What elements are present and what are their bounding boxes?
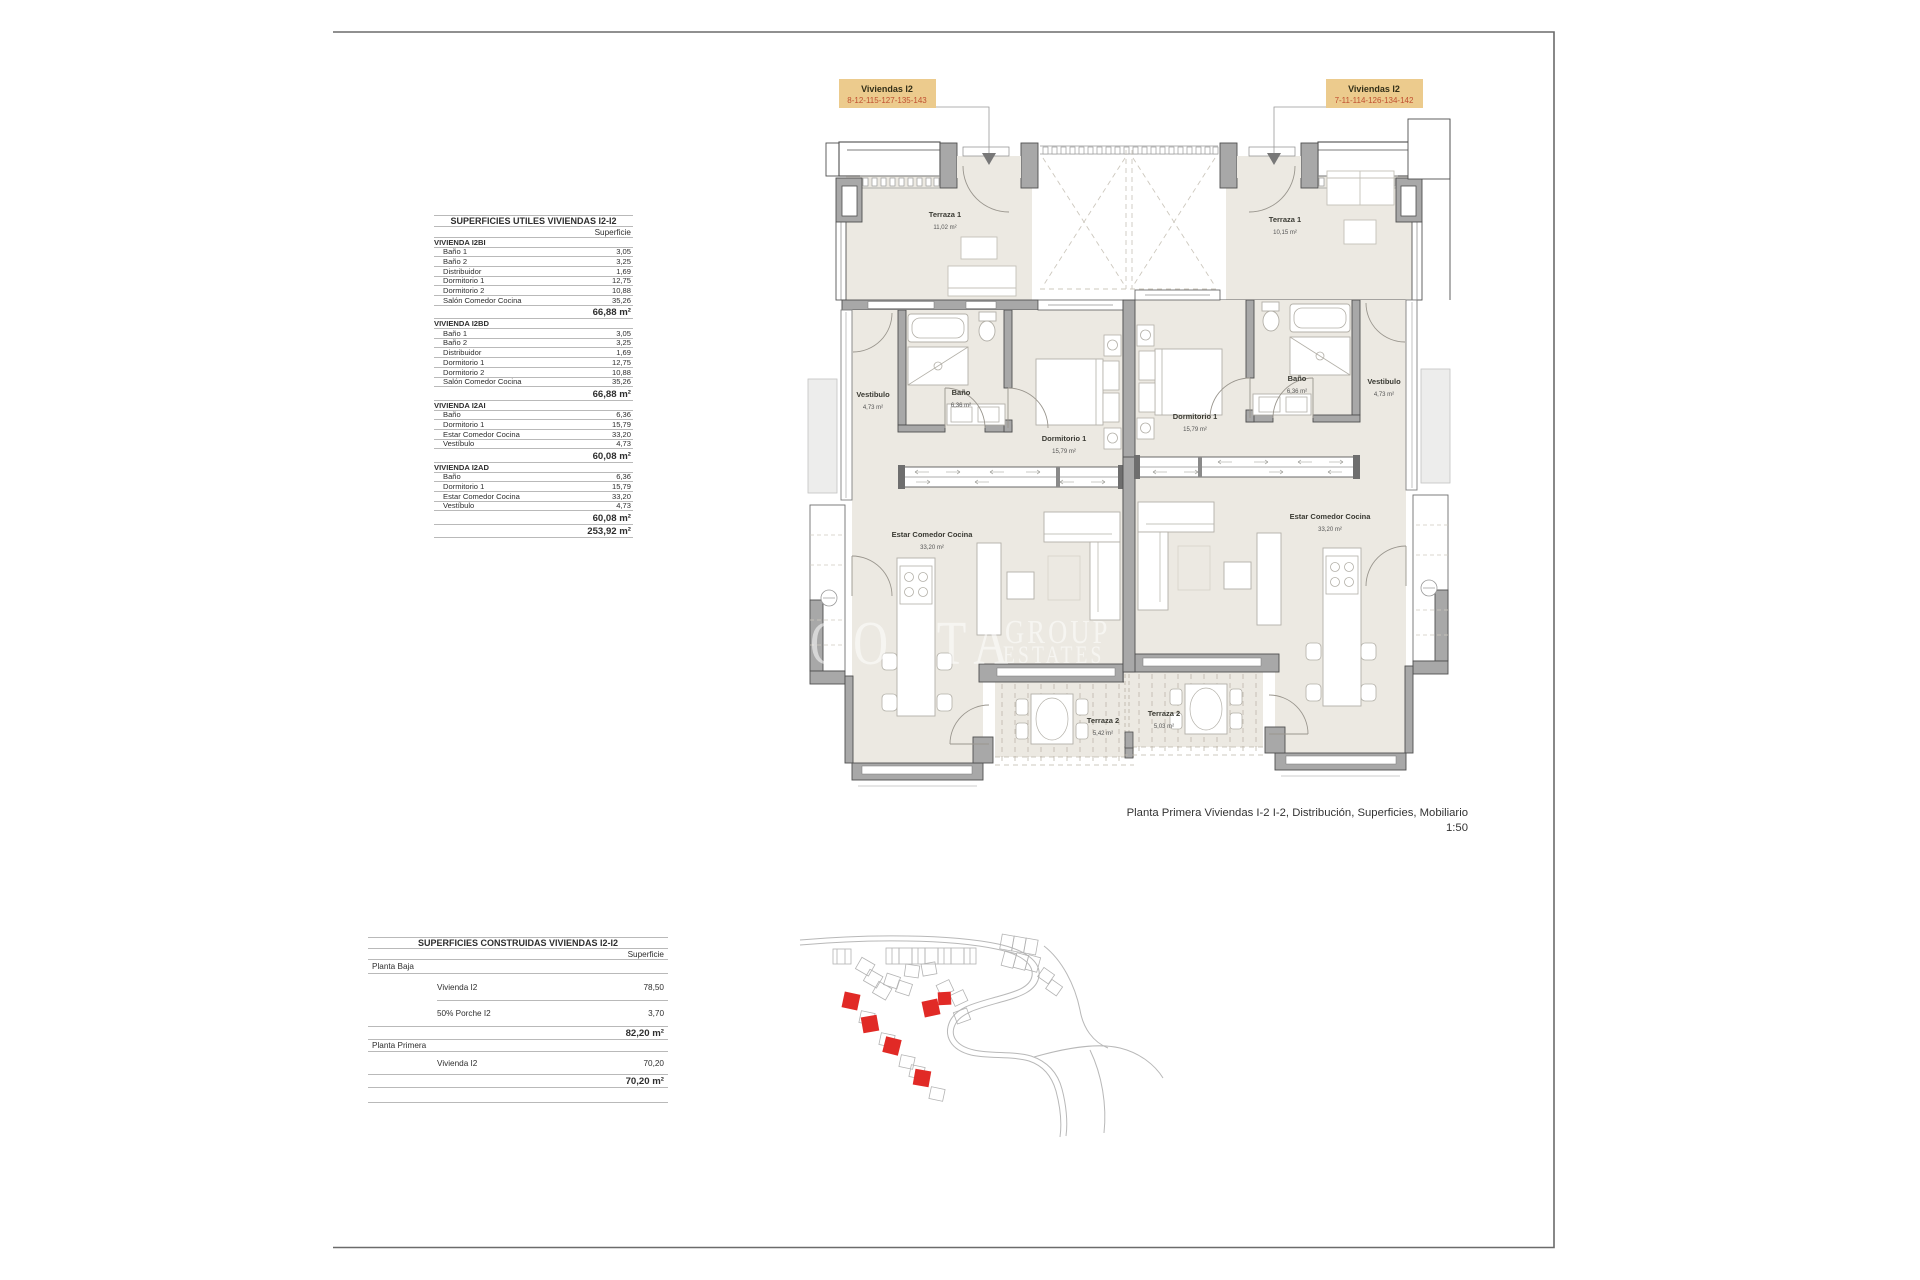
svg-text:Estar Comedor Cocina: Estar Comedor Cocina [1290, 512, 1372, 521]
svg-text:33,20 m²: 33,20 m² [1318, 527, 1342, 533]
svg-text:Terraza 1: Terraza 1 [929, 210, 961, 219]
svg-text:COSTA: COSTA [810, 609, 1019, 678]
svg-text:Vestibulo: Vestibulo [856, 390, 890, 399]
svg-text:Terraza 2: Terraza 2 [1087, 716, 1119, 725]
svg-text:Viviendas I2: Viviendas I2 [861, 84, 913, 94]
svg-text:Dormitorio 1: Dormitorio 1 [1042, 434, 1087, 443]
svg-text:Terraza 1: Terraza 1 [1269, 215, 1301, 224]
svg-text:7-11-114-126-134-142: 7-11-114-126-134-142 [1335, 96, 1414, 105]
svg-text:Baño: Baño [1288, 374, 1307, 383]
svg-text:5,42 m²: 5,42 m² [1093, 731, 1113, 737]
svg-text:33,20 m²: 33,20 m² [920, 545, 944, 551]
svg-text:15,79 m²: 15,79 m² [1052, 449, 1076, 455]
svg-text:Baño: Baño [952, 388, 971, 397]
svg-text:Dormitorio 1: Dormitorio 1 [1173, 412, 1218, 421]
svg-text:6,36 m²: 6,36 m² [1287, 389, 1307, 395]
svg-text:Terraza 2: Terraza 2 [1148, 709, 1180, 718]
svg-text:10,15 m²: 10,15 m² [1273, 230, 1297, 236]
svg-text:8-12-115-127-135-143: 8-12-115-127-135-143 [847, 96, 927, 105]
svg-text:4,73 m²: 4,73 m² [1374, 392, 1394, 398]
svg-text:Viviendas I2: Viviendas I2 [1348, 84, 1400, 94]
svg-text:6,36 m²: 6,36 m² [951, 403, 971, 409]
svg-text:5,03 m²: 5,03 m² [1154, 724, 1174, 730]
svg-text:Vestibulo: Vestibulo [1367, 377, 1401, 386]
svg-text:11,02 m²: 11,02 m² [933, 225, 956, 231]
svg-text:Estar Comedor Cocina: Estar Comedor Cocina [892, 530, 974, 539]
svg-text:4,73 m²: 4,73 m² [863, 405, 883, 411]
svg-text:15,79 m²: 15,79 m² [1183, 427, 1207, 433]
svg-text:ESTATES: ESTATES [1003, 641, 1104, 669]
